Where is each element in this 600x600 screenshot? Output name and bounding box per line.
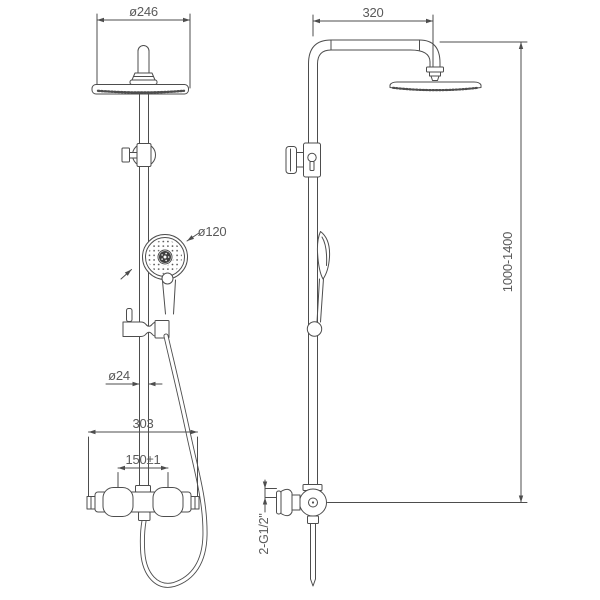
technical-drawing-page: ø246 320 ø120 ø24 303 150±1 1000-1400 2-… [0,0,600,600]
dim-head-diameter-label: ø246 [129,4,158,19]
diverter-knob-side [286,143,321,177]
rain-shower-head-front [92,46,189,94]
hand-shower-hose-side [311,524,316,587]
dim-mixer-width-label: 303 [132,416,153,431]
hand-shower-front [143,235,188,315]
hand-shower-handle-front [163,280,176,314]
rain-shower-head-side [390,82,481,91]
dim-pipe-diameter-label: ø24 [108,368,130,383]
front-view [87,14,205,585]
side-view [263,15,527,586]
dim-arm-projection-label: 320 [362,5,383,20]
mixer-knob-left-front [103,488,133,517]
dim-inlet-spacing [118,466,168,487]
dim-inlet-spacing-label: 150±1 [125,452,160,467]
thermostatic-mixer-front [87,486,199,521]
holder-ring-side [307,322,321,336]
thermostatic-mixer-side [277,485,327,524]
dim-height-range-label: 1000-1400 [500,232,515,292]
dim-connection-thread [263,480,277,512]
shower-pipe-side [309,64,318,485]
hand-shower-side [317,232,330,323]
dim-connection-thread-label: 2-G1/2" [257,513,271,554]
slider-clamp-front [122,144,156,167]
mixer-knob-right-front [153,488,183,517]
dim-hand-shower-diameter-label: ø120 [198,224,227,239]
dim-height-range [328,42,528,503]
technical-drawing-canvas: ø246 320 ø120 ø24 303 150±1 1000-1400 2-… [0,0,600,600]
shower-arm-side [309,40,444,81]
hand-shower-holder-front [123,309,169,339]
